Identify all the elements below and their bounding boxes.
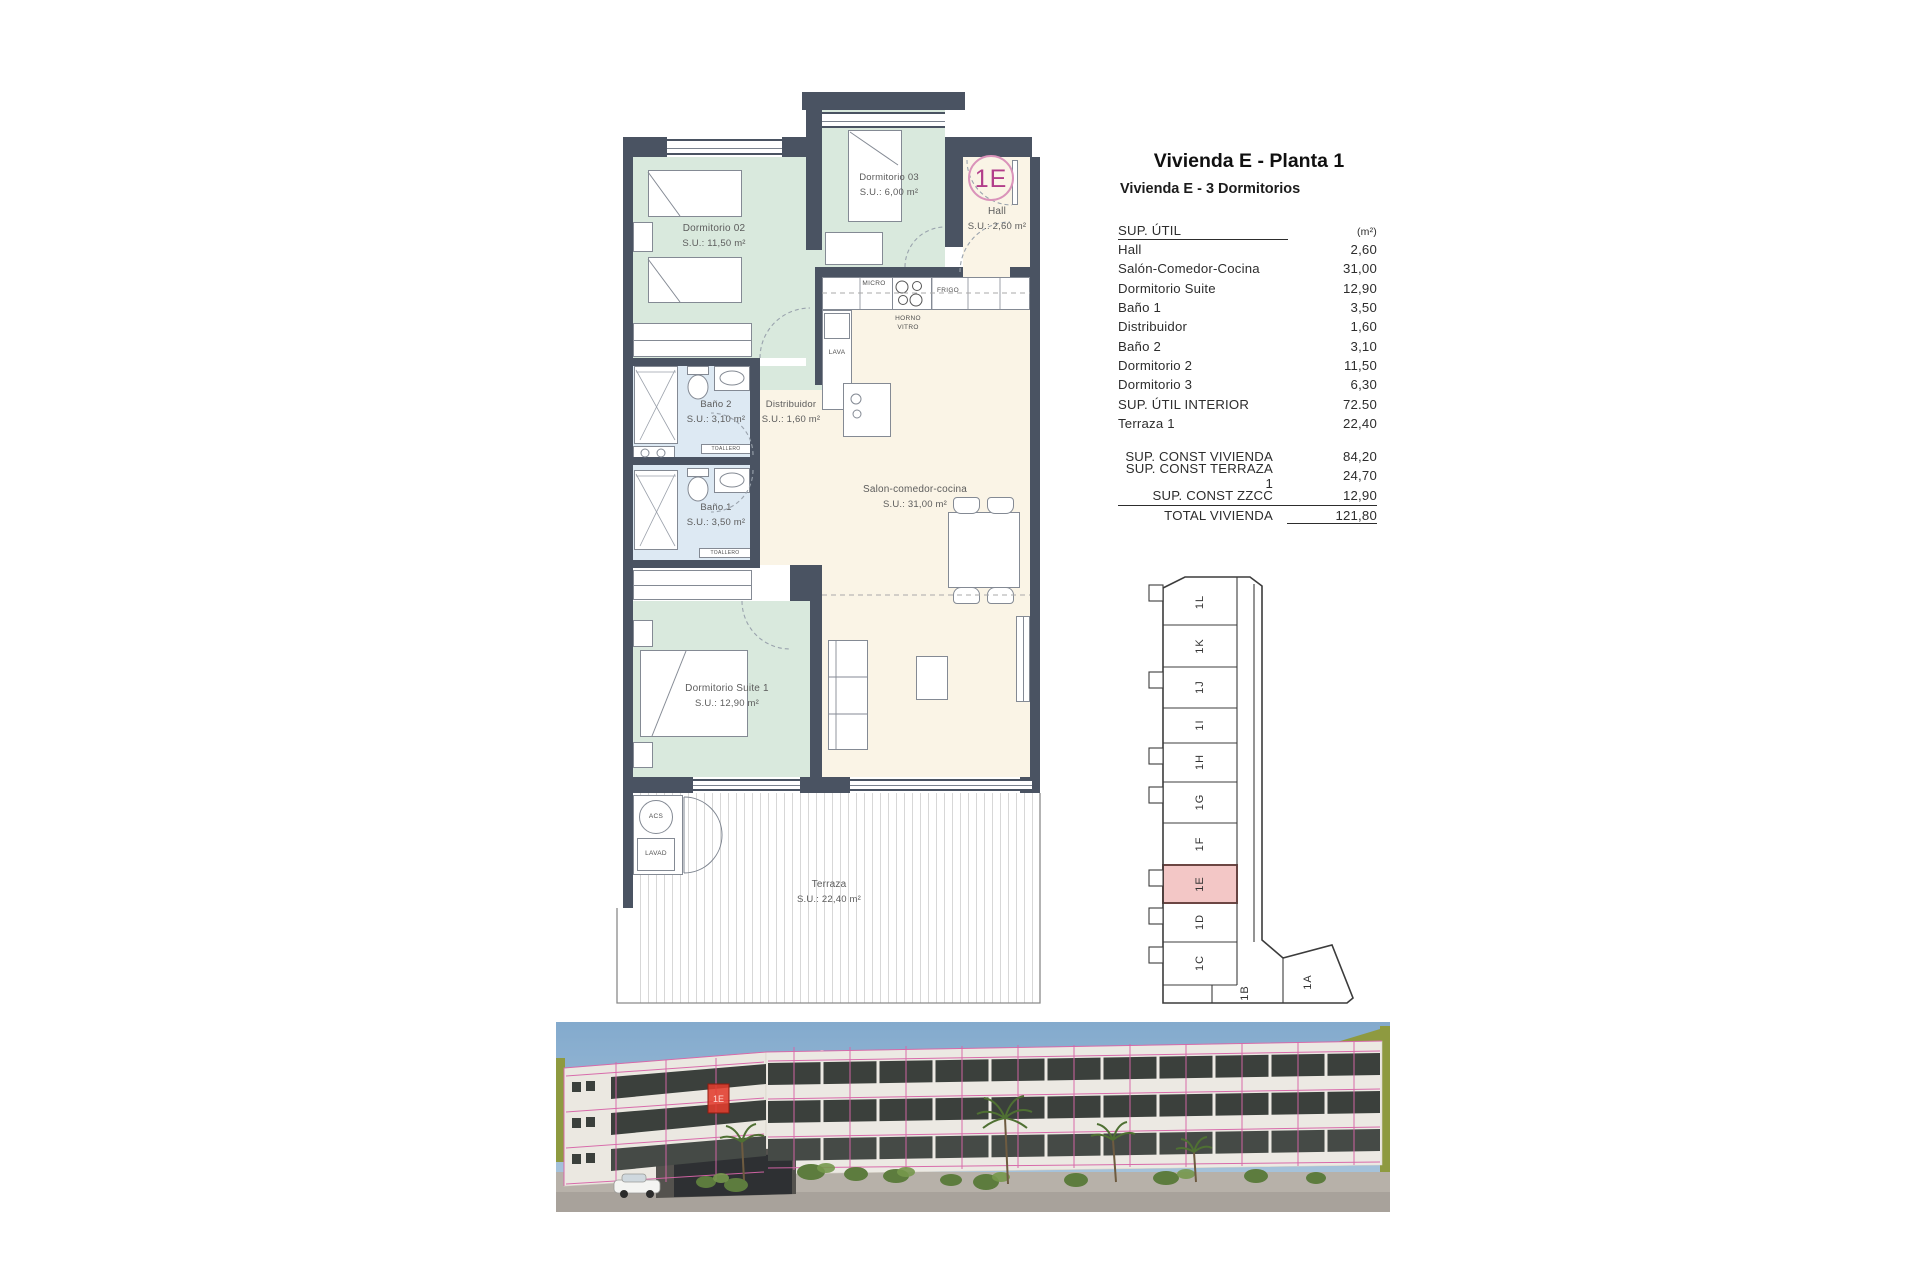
row-label: Distribuidor	[1118, 319, 1187, 334]
unit-label: 1L	[1194, 595, 1206, 609]
room-area: S.U.: 31,00 m²	[845, 497, 985, 512]
table-row: Dormitorio 211,50	[1118, 356, 1377, 375]
label-toallero: TOALLERO	[701, 446, 751, 452]
page-title: Vivienda E - Planta 1	[1120, 150, 1378, 173]
table-row: Salón-Comedor-Cocina31,00	[1118, 259, 1377, 278]
room-name: Salon-comedor-cocina	[863, 484, 967, 495]
row-value: 22,40	[1297, 416, 1377, 431]
room-area: S.U.: 2,60 m²	[927, 219, 1067, 234]
terrace-doors	[684, 797, 722, 873]
room-label-terraza: Terraza S.U.: 22,40 m²	[759, 877, 899, 907]
row-value: 3,50	[1297, 300, 1377, 315]
key-plan: 1L 1K 1J 1I 1H 1G 1F 1E 1D 1C 1B 1A	[1140, 572, 1370, 1020]
room-area: S.U.: 11,50 m²	[644, 236, 784, 251]
row-value: 72.50	[1297, 397, 1377, 412]
room-area: S.U.: 12,90 m²	[657, 696, 797, 711]
building-render-image: 1E	[556, 1022, 1390, 1212]
table-row: SUP. ÚTIL INTERIOR72.50	[1118, 394, 1377, 413]
sofa-cushion-lines	[828, 640, 868, 750]
room-area: S.U.: 1,60 m²	[721, 412, 861, 427]
building-render: 1E	[556, 1022, 1390, 1212]
unit-label: 1J	[1194, 680, 1206, 694]
summary-table: SUP. CONST VIVIENDA84,20 SUP. CONST TERR…	[1118, 447, 1377, 525]
room-name: Hall	[988, 206, 1006, 217]
room-name: Dormitorio 03	[859, 172, 919, 183]
row-value: 24,70	[1287, 468, 1377, 483]
row-value: 31,00	[1297, 261, 1377, 276]
row-label: Dormitorio 3	[1118, 377, 1192, 392]
room-label-suite: Dormitorio Suite 1 S.U.: 12,90 m²	[657, 681, 797, 711]
row-label: SUP. CONST TERRAZA 1	[1118, 461, 1287, 491]
row-label: Dormitorio 2	[1118, 358, 1192, 373]
room-label-bano-1: Baño 1 S.U.: 3,50 m²	[646, 500, 786, 530]
summary-row: SUP. CONST TERRAZA 124,70	[1118, 466, 1377, 485]
row-label: SUP. CONST ZZCC	[1118, 488, 1287, 503]
key-plan-outline	[1163, 577, 1353, 1003]
row-value: 6,30	[1297, 377, 1377, 392]
key-plan-dividers	[1163, 577, 1283, 1003]
room-name: Distribuidor	[766, 399, 816, 410]
stove-burners	[896, 281, 922, 306]
row-label: Hall	[1118, 242, 1142, 257]
render-highlight-unit: 1E	[708, 1084, 729, 1113]
unit-label: 1B	[1239, 985, 1251, 1000]
room-area: S.U.: 22,40 m²	[759, 892, 899, 907]
areas-table-header: SUP. ÚTIL (m²)	[1118, 220, 1377, 240]
row-label: Baño 1	[1118, 300, 1161, 315]
label-micro: MICRO	[852, 280, 896, 287]
row-label: Salón-Comedor-Cocina	[1118, 261, 1260, 276]
label-toallero: TOALLERO	[699, 550, 751, 556]
key-plan-notches	[1149, 585, 1163, 963]
label-lava: LAVA	[814, 349, 860, 356]
table-row: Baño 23,10	[1118, 336, 1377, 355]
row-label: Terraza 1	[1118, 416, 1175, 431]
table-row: Terraza 122,40	[1118, 414, 1377, 433]
unit-label: 1F	[1194, 837, 1206, 852]
unit-label: 1H	[1194, 754, 1206, 770]
label-frigo: FRIGO	[924, 287, 972, 294]
label-horno-vitro: HORNO VITRO	[888, 314, 928, 332]
render-highlight-label: 1E	[713, 1094, 724, 1104]
label-acs: ACS	[639, 813, 673, 820]
label-lavad: LAVAD	[637, 850, 675, 857]
row-value: 11,50	[1297, 358, 1377, 373]
row-value: 121,80	[1287, 508, 1377, 524]
room-area: S.U.: 6,00 m²	[824, 185, 954, 200]
room-name: Dormitorio 02	[683, 223, 746, 234]
room-label-dormitorio-02: Dormitorio 02 S.U.: 11,50 m²	[644, 221, 784, 251]
toilet-bowls	[641, 371, 861, 501]
row-value: 12,90	[1287, 488, 1377, 503]
unit-label: 1D	[1194, 914, 1206, 930]
row-label: Baño 2	[1118, 339, 1161, 354]
unit-badge: 1E	[968, 155, 1014, 201]
room-label-distribuidor: Distribuidor S.U.: 1,60 m²	[721, 397, 861, 427]
table-row: Hall2,60	[1118, 240, 1377, 259]
table-row: Dormitorio Suite12,90	[1118, 279, 1377, 298]
room-name: Baño 1	[700, 502, 731, 513]
row-label: SUP. ÚTIL INTERIOR	[1118, 397, 1249, 412]
row-value: 1,60	[1297, 319, 1377, 334]
page-subtitle: Vivienda E - 3 Dormitorios	[1120, 181, 1300, 197]
row-label: Dormitorio Suite	[1118, 281, 1216, 296]
room-label-dormitorio-03: Dormitorio 03 S.U.: 6,00 m²	[824, 170, 954, 200]
table-row: Dormitorio 36,30	[1118, 375, 1377, 394]
room-name: Terraza	[812, 879, 847, 890]
unit-label: 1C	[1194, 955, 1206, 971]
areas-table: SUP. ÚTIL (m²) Hall2,60 Salón-Comedor-Co…	[1118, 220, 1377, 433]
room-label-salon: Salon-comedor-cocina S.U.: 31,00 m²	[845, 482, 985, 512]
unit-label-highlighted: 1E	[1194, 876, 1206, 891]
areas-table-header-unit: (m²)	[1357, 226, 1377, 240]
summary-row-total: TOTAL VIVIENDA121,80	[1118, 505, 1377, 525]
room-area: S.U.: 3,50 m²	[646, 515, 786, 530]
row-value: 84,20	[1287, 449, 1377, 464]
unit-label: 1A	[1302, 974, 1314, 989]
table-row: Baño 13,50	[1118, 298, 1377, 317]
row-label: TOTAL VIVIENDA	[1118, 508, 1287, 523]
unit-label: 1K	[1194, 638, 1206, 653]
unit-label: 1G	[1194, 794, 1206, 811]
summary-row: SUP. CONST ZZCC12,90	[1118, 486, 1377, 505]
row-value: 2,60	[1297, 242, 1377, 257]
row-value: 3,10	[1297, 339, 1377, 354]
row-value: 12,90	[1297, 281, 1377, 296]
table-row: Distribuidor1,60	[1118, 317, 1377, 336]
unit-label: 1I	[1194, 719, 1206, 730]
areas-table-header-label: SUP. ÚTIL	[1118, 223, 1288, 240]
room-name: Dormitorio Suite 1	[685, 683, 769, 694]
dashed-reference-lines	[822, 293, 1030, 595]
room-label-hall: Hall S.U.: 2,60 m²	[927, 204, 1067, 234]
